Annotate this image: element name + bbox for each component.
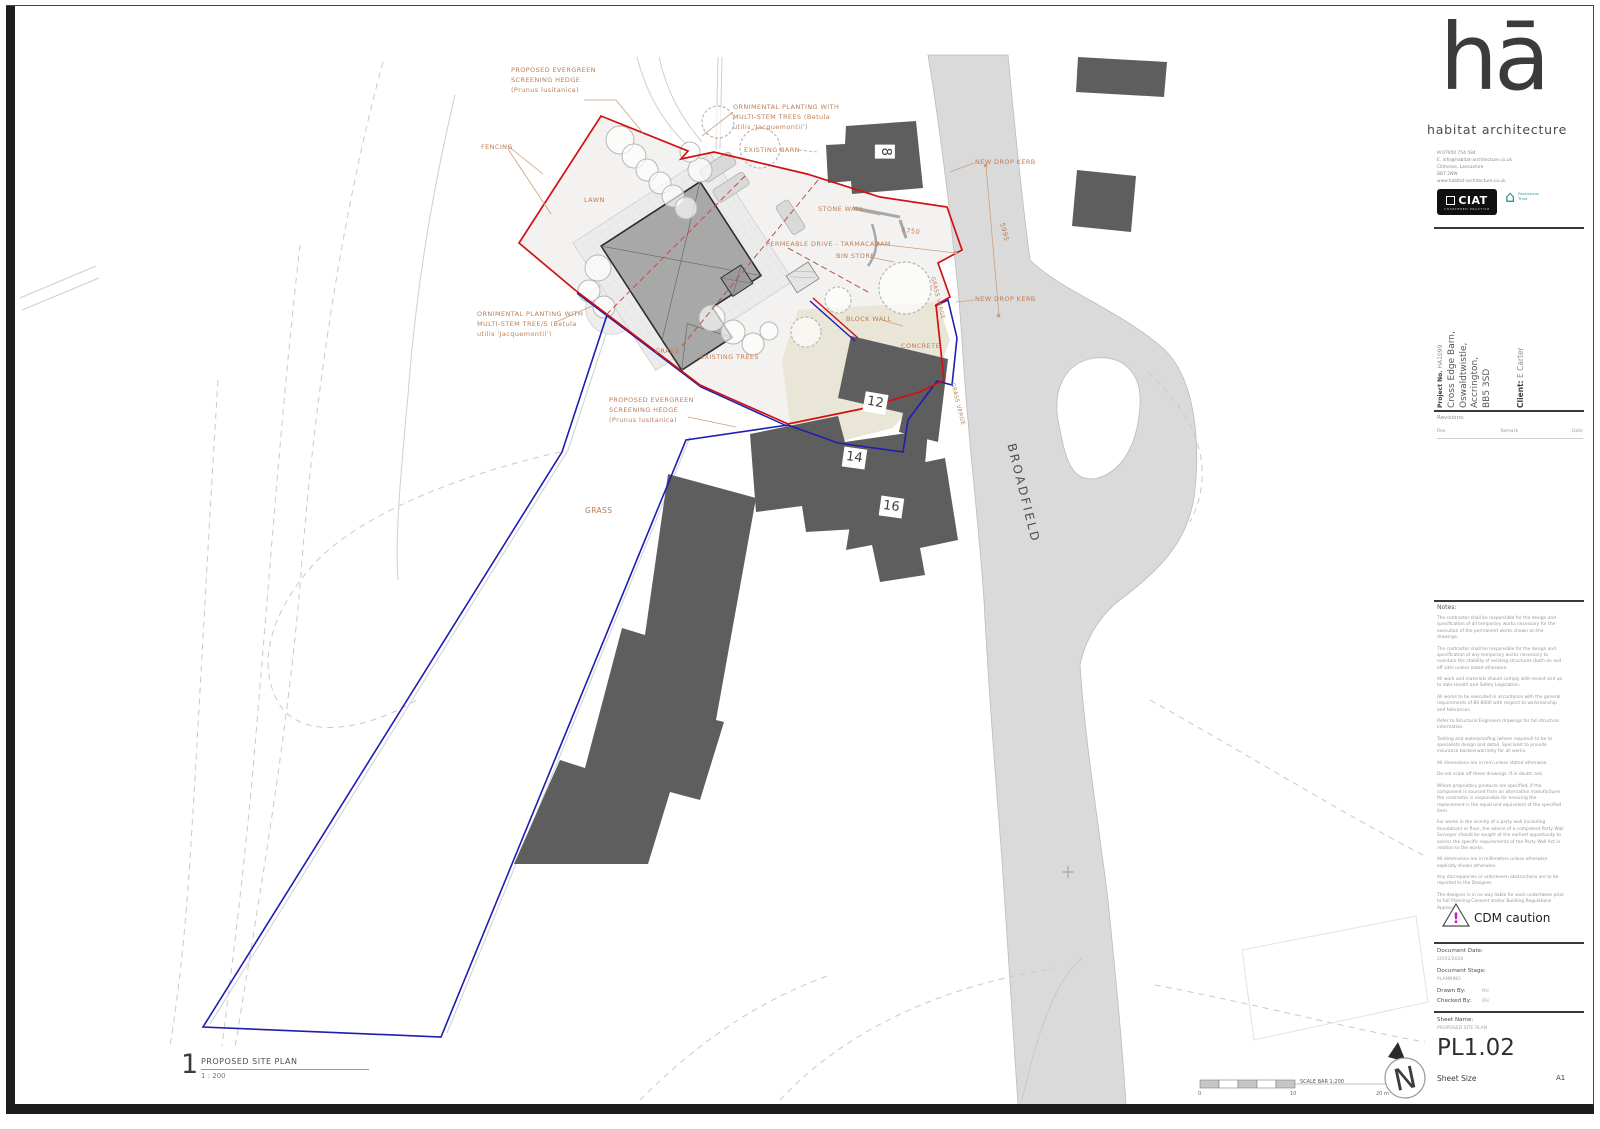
sheet-border-bottom <box>6 1104 1594 1114</box>
label-bin-store: BIN STORE <box>836 252 875 262</box>
accreditation-badges: CIAT CHARTERED PRACTICE ⌂ Passivhaus Tru… <box>1437 189 1539 215</box>
north-arrow: N <box>1376 1040 1436 1102</box>
cdm-warning-icon: ! <box>1441 901 1471 929</box>
note-paragraph: All dimensions are in millimeters unless… <box>1437 857 1565 870</box>
building-top-right-2 <box>1072 170 1136 232</box>
revisions-title: Revisions: <box>1437 415 1465 421</box>
note-paragraph: Tanking and waterproofing (where require… <box>1437 737 1565 756</box>
viewport-scale: 1 : 200 <box>201 1072 226 1080</box>
sheet-border-right <box>1593 5 1594 1105</box>
note-paragraph: The contractor shall be responsible for … <box>1437 616 1565 642</box>
titleblock-divider-2 <box>1434 410 1584 412</box>
label-ornamental-left: ORNIMENTAL PLANTING WITH MULTI-STEM TREE… <box>477 310 583 339</box>
document-date-value: 20/02/2026 <box>1437 957 1463 962</box>
label-block-wall: BLOCK WALL <box>846 315 892 325</box>
sheet-size-value: A1 <box>1556 1074 1565 1082</box>
site-plan-canvas <box>0 0 1600 1129</box>
label-grass-small: GRASS <box>655 347 679 357</box>
project-number: HA1099 <box>1437 345 1444 369</box>
titleblock-divider-4 <box>1434 942 1584 944</box>
label-fencing: FENCING <box>481 143 513 153</box>
label-permeable-drive: PERMEABLE DRIVE - TARMACADAM <box>766 240 891 250</box>
firm-contact: M 07950 754 584 E. info@habitat-architec… <box>1437 150 1512 185</box>
titleblock-divider-5 <box>1434 1011 1584 1013</box>
viewport-title: PROPOSED SITE PLAN <box>201 1057 297 1066</box>
label-ornamental-top: ORNIMENTAL PLANTING WITH MULTI-STEM TREE… <box>733 103 839 132</box>
building-16 <box>846 458 958 582</box>
revisions-rule <box>1437 438 1583 439</box>
scalebar-tick-0: 0 <box>1198 1091 1201 1097</box>
label-concrete: CONCRETE <box>901 342 940 352</box>
label-existing-trees: EXISTING TREES <box>700 353 759 363</box>
road-broadfield <box>928 55 1197 1105</box>
checked-by-value: RH <box>1482 999 1489 1004</box>
house-number-16: 16 <box>879 496 904 518</box>
firm-name: habitat architecture <box>1427 122 1587 137</box>
ciat-badge: CIAT CHARTERED PRACTICE <box>1437 189 1497 215</box>
note-paragraph: The contractor shall be responsible for … <box>1437 647 1565 673</box>
passivhaus-badge: ⌂ Passivhaus Trust <box>1505 189 1539 205</box>
note-paragraph: All works to be executed in accordance w… <box>1437 695 1565 714</box>
note-paragraph: Refer to Structural Engineers drawings f… <box>1437 719 1565 732</box>
client-label: Client: <box>1516 380 1525 408</box>
revisions-col-date: Date <box>1572 429 1583 434</box>
house-number-12: 12 <box>862 391 888 414</box>
label-new-drop-kerb-top: NEW DROP KERB <box>975 158 1036 168</box>
scalebar-label: SCALE BAR 1:200 <box>1300 1079 1344 1085</box>
notes-section: Notes: The contractor shall be responsib… <box>1437 604 1565 917</box>
sheet-border-top <box>6 5 1594 6</box>
drawn-by-value: RH <box>1482 989 1489 994</box>
label-existing-barn: EXISTING BARN <box>744 146 800 156</box>
note-paragraph: All work and materials should comply wit… <box>1437 677 1565 690</box>
building-top-right-1 <box>1076 57 1167 97</box>
note-paragraph: Where proprietary products are specified… <box>1437 784 1565 816</box>
label-hedge-lower: PROPOSED EVERGREEN SCREENING HEDGE (Prun… <box>609 396 694 425</box>
sheet-size-label: Sheet Size <box>1437 1074 1476 1083</box>
sheet-border-left <box>6 6 15 1112</box>
project-number-label: Project No. <box>1437 370 1444 408</box>
building-farm-large <box>514 474 756 864</box>
ciat-icon <box>1446 196 1455 205</box>
svg-text:!: ! <box>1453 911 1459 927</box>
house-number-14: 14 <box>842 447 867 469</box>
label-new-drop-kerb-bottom: NEW DROP KERB <box>975 295 1036 305</box>
house-number-8: 8 <box>875 145 895 159</box>
note-paragraph: Any discrepancies or unforeseen obstruct… <box>1437 875 1565 888</box>
document-stage-label: Document Stage: <box>1437 968 1486 974</box>
note-paragraph: All dimensions are in mm unless stated o… <box>1437 761 1565 767</box>
viewport-title-rule <box>201 1069 369 1070</box>
drawn-by-label: Drawn By: <box>1437 988 1466 994</box>
titleblock-divider-1 <box>1434 227 1584 229</box>
drawing-sheet: PROPOSED EVERGREEN SCREENING HEDGE (Prun… <box>0 0 1600 1129</box>
viewport-number: 1 <box>181 1049 198 1080</box>
titleblock-divider-3 <box>1434 600 1584 602</box>
sheet-number: PL1.02 <box>1437 1035 1515 1061</box>
document-stage-value: PLANNING <box>1437 977 1461 982</box>
label-grass-large: GRASS <box>585 505 612 516</box>
label-stone-wall: STONE WALL <box>818 205 864 215</box>
revisions-header: Rev. Remark Date <box>1437 429 1583 434</box>
ciat-label: CIAT <box>1458 194 1487 207</box>
note-paragraph: For works in the vicinity of a party wal… <box>1437 820 1565 852</box>
checked-by-label: Checked By: <box>1437 998 1471 1004</box>
revisions-col-rev: Rev. <box>1437 429 1447 434</box>
faint-building-outline <box>1242 916 1428 1040</box>
revisions-col-remark: Remark <box>1501 429 1519 434</box>
client-name: E Carter <box>1516 347 1525 378</box>
passivhaus-label: Passivhaus Trust <box>1518 192 1539 202</box>
label-lawn: LAWN <box>584 196 605 206</box>
passivhaus-house-icon: ⌂ <box>1505 189 1515 205</box>
scalebar-tick-10: 10 <box>1290 1091 1296 1097</box>
scale-bar <box>1200 1079 1390 1089</box>
firm-logo: hā <box>1428 10 1558 107</box>
project-address: Cross Edge Barn, Oswaldtwistle, Accringt… <box>1447 294 1494 408</box>
note-paragraph: Do not scale off these drawings. If in d… <box>1437 772 1565 778</box>
document-date-label: Document Date: <box>1437 948 1483 954</box>
label-hedge-top: PROPOSED EVERGREEN SCREENING HEDGE (Prun… <box>511 66 596 95</box>
notes-title: Notes: <box>1437 604 1565 611</box>
sheet-name-value: PROPOSED SITE PLAN <box>1437 1026 1487 1031</box>
cdm-caution-label: CDM caution <box>1474 911 1550 925</box>
ciat-subtitle: CHARTERED PRACTICE <box>1444 207 1490 211</box>
sheet-name-label: Sheet Name: <box>1437 1017 1473 1023</box>
project-info-rotated: Project No. HA1099 Cross Edge Barn, Oswa… <box>1437 294 1532 408</box>
